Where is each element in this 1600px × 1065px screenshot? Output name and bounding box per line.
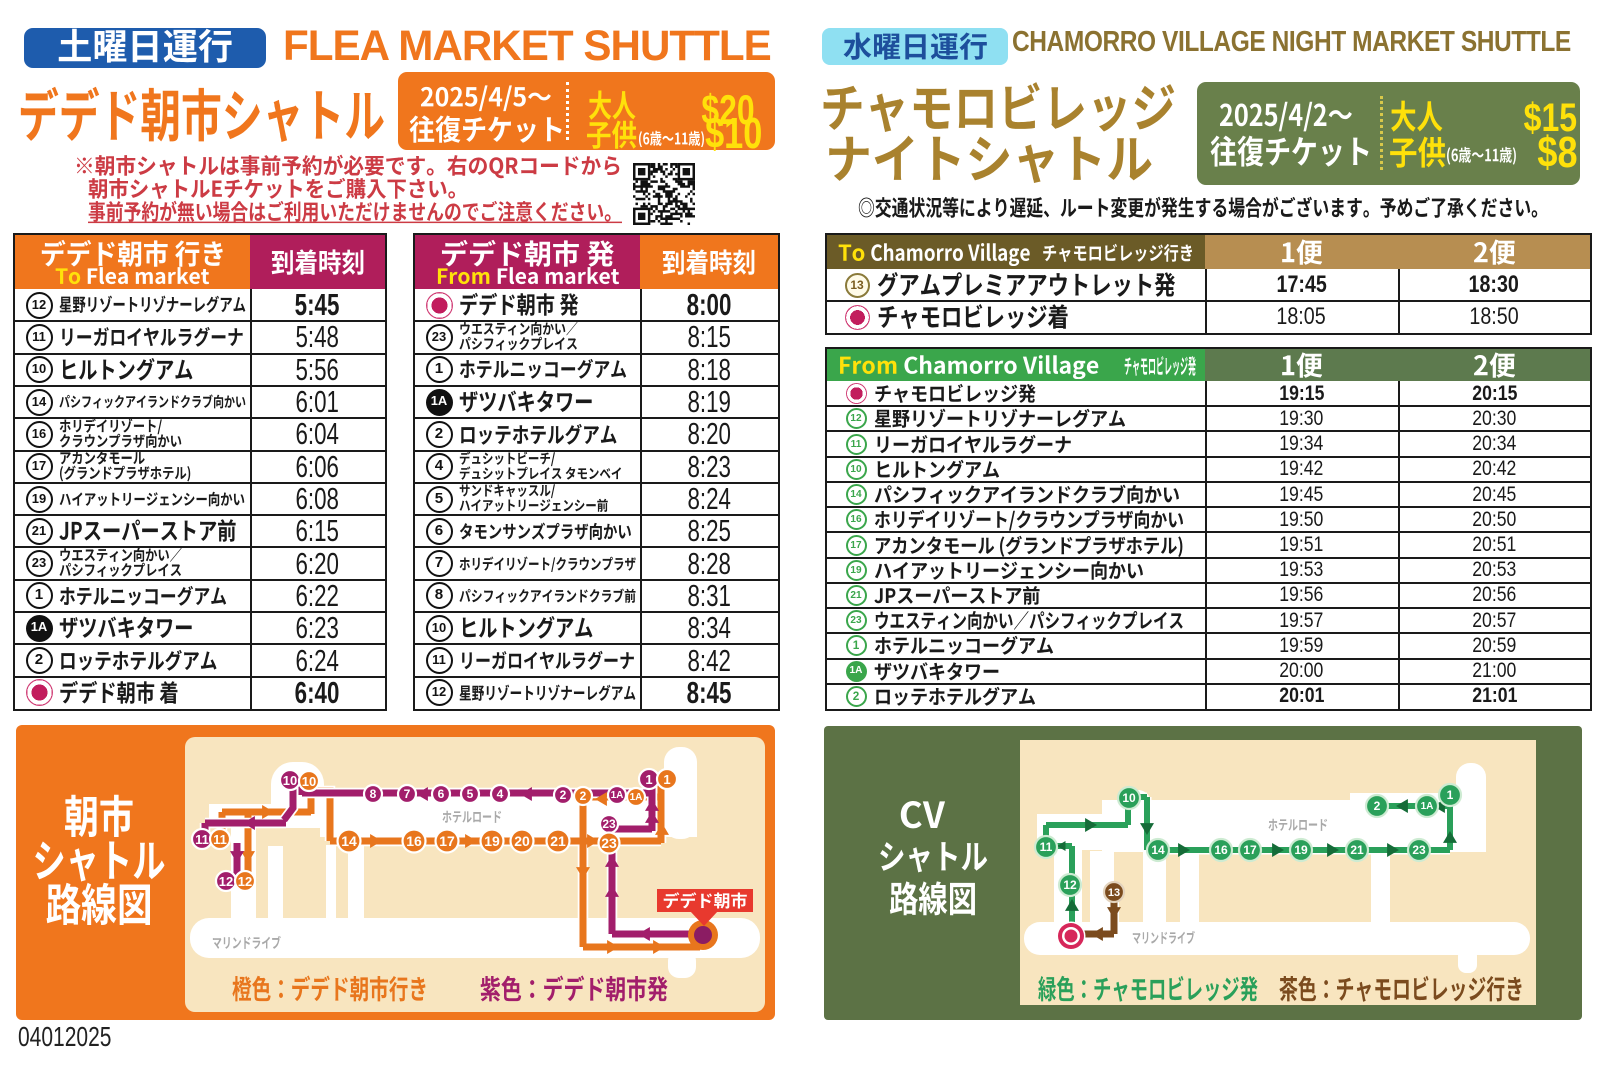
svg-text:11: 11 [213,832,227,847]
svg-text:19: 19 [1294,843,1308,857]
svg-text:23: 23 [601,835,617,851]
svg-text:8: 8 [370,787,377,801]
svg-text:17: 17 [1243,843,1257,857]
svg-text:17: 17 [439,833,455,849]
svg-text:21: 21 [1350,843,1364,857]
svg-text:2: 2 [1374,799,1381,813]
svg-text:10: 10 [283,773,297,788]
svg-text:1: 1 [645,772,652,787]
svg-text:1A: 1A [611,790,624,801]
svg-text:6: 6 [438,787,445,801]
svg-text:23: 23 [602,817,616,831]
svg-text:1A: 1A [630,792,643,803]
svg-text:5: 5 [467,787,474,801]
svg-text:1A: 1A [1421,801,1434,812]
svg-text:16: 16 [406,833,422,849]
svg-text:19: 19 [484,833,500,849]
svg-text:7: 7 [404,787,411,801]
svg-text:10: 10 [302,774,316,789]
svg-text:21: 21 [550,833,566,849]
svg-text:1: 1 [663,772,670,787]
svg-text:14: 14 [1151,843,1165,857]
svg-text:12: 12 [1063,878,1077,892]
svg-text:11: 11 [1040,840,1053,854]
svg-text:4: 4 [497,787,504,801]
svg-text:2: 2 [580,789,587,803]
svg-text:14: 14 [341,833,357,849]
svg-text:13: 13 [1108,887,1120,899]
svg-text:23: 23 [1412,843,1426,857]
svg-text:1: 1 [1447,788,1454,802]
svg-text:10: 10 [1122,791,1136,805]
svg-text:16: 16 [1214,843,1228,857]
svg-text:12: 12 [238,874,252,889]
svg-text:12: 12 [219,874,233,889]
svg-text:11: 11 [195,832,209,847]
svg-text:20: 20 [514,833,530,849]
svg-text:2: 2 [560,788,567,802]
